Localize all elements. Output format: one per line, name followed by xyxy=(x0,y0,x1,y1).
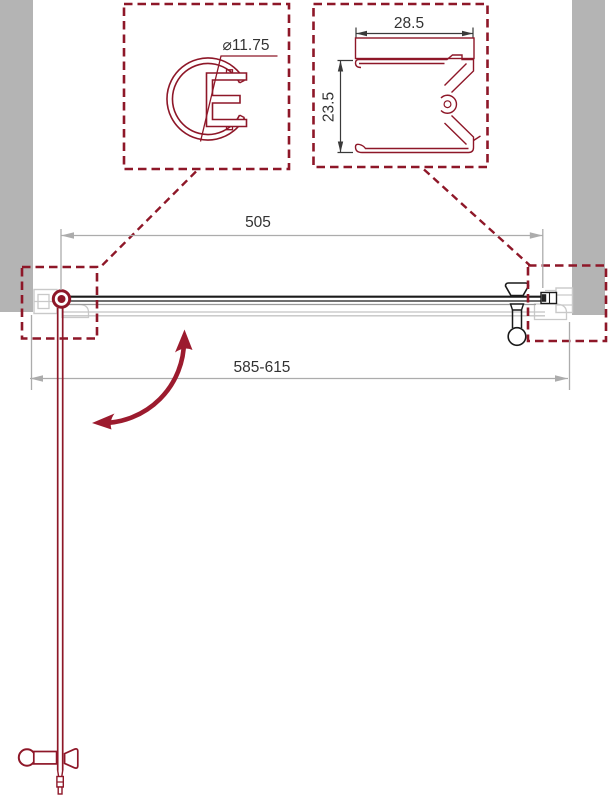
wall-profile-screw-hole xyxy=(444,101,451,108)
label-hinge-profile-diameter: ⌀11.75 xyxy=(223,37,270,54)
door-swing-arc xyxy=(102,341,184,423)
open-handle-stem xyxy=(34,752,57,764)
open-handle-ball xyxy=(19,749,35,765)
handle-stem xyxy=(513,310,522,328)
wall-profile-top-bar-inner xyxy=(359,64,467,86)
shower-door-drawing: ⌀11.75 28.5 23.5 xyxy=(0,0,611,800)
hinge-profile-glass-channel xyxy=(207,73,247,127)
leader-line-right xyxy=(424,170,530,266)
dim-235-arrow-bottom xyxy=(338,142,343,153)
technical-drawing-page: ⌀11.75 28.5 23.5 xyxy=(0,0,611,800)
handle-knob-top xyxy=(506,283,529,296)
door-end-cap-block xyxy=(542,294,546,302)
wall-profile-bottom-bar xyxy=(356,136,481,153)
dim-285-arrow-right xyxy=(462,31,473,36)
dim-585-arrow-right xyxy=(555,375,568,382)
label-wall-profile-width: 28.5 xyxy=(394,15,424,32)
open-door xyxy=(19,308,193,794)
door-bottom-profile-lines xyxy=(63,312,545,316)
dim-285-arrow-left xyxy=(356,31,367,36)
wall-profile-lower-strut xyxy=(445,116,474,148)
label-wall-profile-height: 23.5 xyxy=(321,92,338,122)
label-glass-width: 505 xyxy=(245,214,271,231)
open-handle-knob xyxy=(65,749,78,768)
detail-wall-profile: 28.5 23.5 xyxy=(314,4,488,167)
dim-235-arrow-top xyxy=(338,61,343,72)
dim-505-arrow-right xyxy=(530,232,543,239)
hinge-pin xyxy=(58,295,66,303)
dim-235-lines xyxy=(338,61,354,153)
label-adjustment-range: 585-615 xyxy=(234,359,291,376)
dim-505-extension-lines xyxy=(61,229,543,290)
dim-505-arrow-left xyxy=(61,232,74,239)
main-plan-view: 505 585-615 xyxy=(22,214,606,390)
open-door-glass-lines xyxy=(58,308,63,771)
left-wall xyxy=(0,0,33,312)
open-door-taper xyxy=(58,771,63,777)
right-wall-profile-plan xyxy=(556,288,573,313)
right-wall xyxy=(572,0,605,315)
handle-collar xyxy=(511,304,524,310)
leader-line-left xyxy=(101,172,196,267)
handle-ball xyxy=(508,328,526,346)
wall-profile-screw-boss xyxy=(441,95,456,113)
open-door-bottom-tip xyxy=(58,787,62,794)
detail-hinge-profile: ⌀11.75 xyxy=(124,4,289,169)
